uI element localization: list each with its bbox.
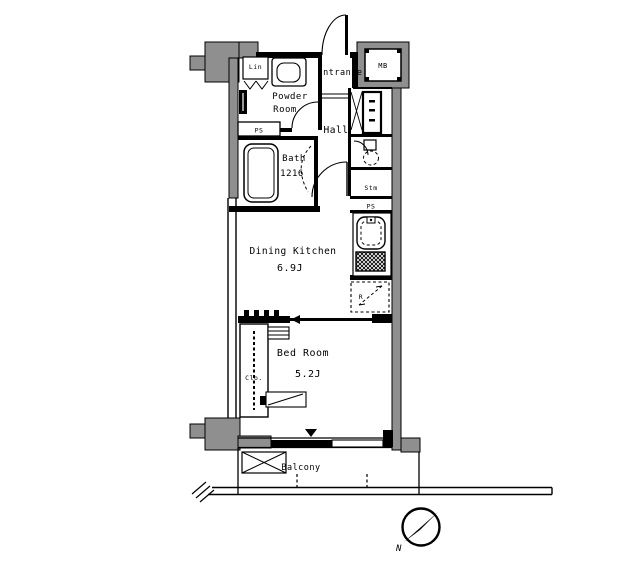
duct-corner — [383, 430, 393, 447]
window-band-2 — [332, 440, 383, 447]
bath-label: Bath — [282, 154, 306, 164]
compass-north-label: N — [395, 544, 402, 554]
stm-label: Stm — [364, 184, 377, 192]
floorplan-svg: Entrance MB Lin Powder Room PS — [0, 0, 640, 569]
balcony-label: Balcony — [281, 463, 320, 473]
ac-unit-icon — [242, 452, 286, 473]
pipe-space-right: PS — [367, 203, 376, 211]
stove-icon — [356, 252, 385, 271]
bedroom-label: Bed Room — [277, 348, 329, 359]
bedroom-size-label: 5.2J — [295, 369, 321, 380]
storage-room: Stm — [364, 184, 377, 192]
ps-left-label: PS — [255, 127, 264, 135]
counter-desk-icon — [260, 392, 306, 407]
kitchen-unit — [353, 213, 391, 276]
dk-label: Dining Kitchen — [249, 246, 336, 257]
shelf-icon — [268, 327, 289, 339]
ps-right-label: PS — [367, 203, 376, 211]
mb-label: MB — [378, 62, 387, 70]
meter-box: MB — [365, 49, 401, 81]
pipe-space-left: PS — [238, 122, 280, 136]
window-band — [271, 440, 332, 447]
right-wall — [392, 88, 401, 450]
entrance-door-leaf — [345, 15, 348, 55]
closet-label: Clo. — [245, 374, 263, 382]
entrance-label: Entrance — [318, 68, 363, 78]
bath-size-label: 1216 — [280, 169, 304, 179]
sliding-door — [290, 318, 374, 321]
lin-label: Lin — [249, 63, 262, 71]
powder-room-label-2: Room — [273, 105, 297, 115]
hall-label: Hall — [324, 125, 349, 136]
fridge-label: R — [359, 293, 363, 301]
dk-size-label: 6.9J — [277, 263, 303, 274]
powder-room-label-1: Powder — [272, 92, 308, 102]
floorplan-image: Entrance MB Lin Powder Room PS — [0, 0, 640, 569]
